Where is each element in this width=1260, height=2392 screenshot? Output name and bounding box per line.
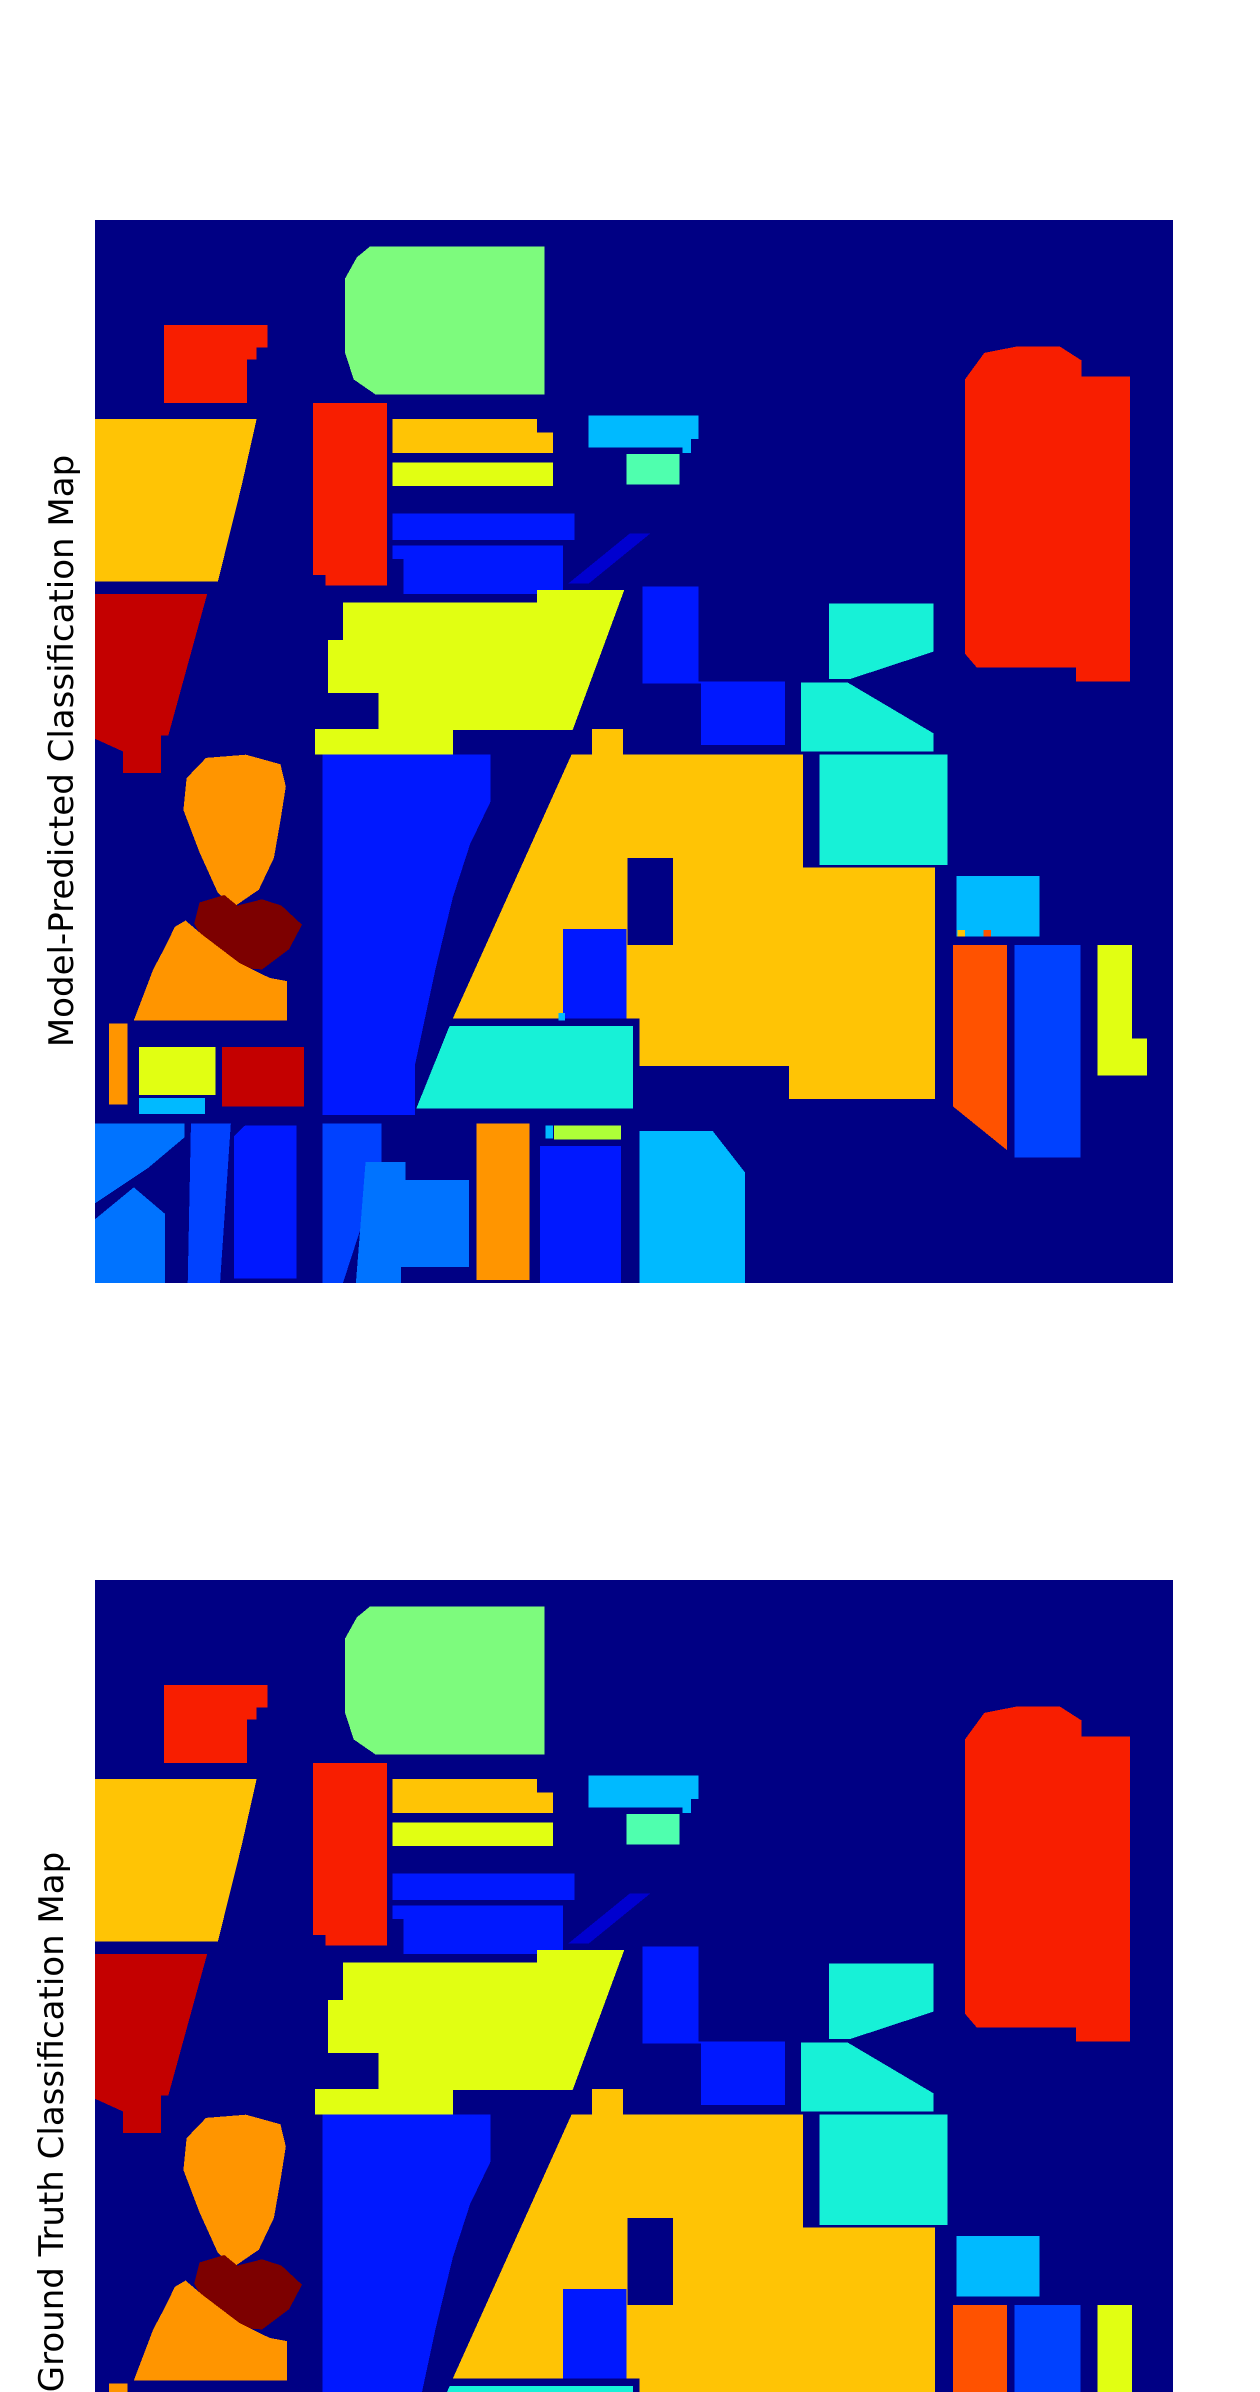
ground_truth-region-aquamarine-box	[626, 1814, 679, 1845]
ground_truth-region-orange-strip-narrow	[109, 2384, 127, 2392]
predicted-region-yellow-field-notch	[315, 693, 379, 729]
predicted-region-noise-dot-cyan	[559, 1013, 565, 1020]
predicted-region-yellow-bar	[393, 462, 554, 485]
predicted-region-blue-bar-1	[393, 513, 575, 540]
predicted-region-sky-block-right	[956, 876, 1039, 937]
predicted-classification-map	[95, 220, 1173, 1283]
ground_truth-region-orangered-strip	[953, 2305, 1007, 2392]
predicted-region-blue-strip-right	[1015, 945, 1081, 1158]
figure-canvas: Model-Predicted Classification Map Groun…	[0, 0, 1260, 2392]
predicted-region-gold-field-notch	[628, 858, 673, 945]
predicted-region-blue-rect-b	[234, 1126, 297, 1279]
ground_truth-region-blue-rect-in-gold	[563, 2289, 627, 2378]
predicted-region-sky-block-rounded	[639, 1131, 745, 1283]
predicted-region-orange-strip-bottom	[477, 1124, 530, 1280]
ground_truth-region-yellow-field-notch	[315, 2053, 379, 2089]
predicted-region-red-block-right	[965, 346, 1130, 681]
predicted-region-blue-rect-in-gold	[563, 929, 627, 1018]
ground_truth-region-green-blob	[345, 1607, 544, 1755]
ground_truth-region-turquoise-block-right	[819, 2115, 947, 2226]
ground_truth-region-gold-bar	[393, 1779, 554, 1813]
ground_truth-region-red-box-vertical	[313, 1763, 387, 1946]
predicted-region-turquoise-block-right	[819, 755, 947, 866]
predicted-region-blue-patch-e	[356, 1162, 469, 1283]
predicted-region-sky-bit	[546, 1126, 554, 1139]
predicted-region-gold-box-small	[592, 729, 623, 755]
ground_truth-region-sky-bar-top	[589, 1776, 699, 1813]
ylabel-ground-truth-map: Ground Truth Classification Map	[32, 1852, 72, 2392]
predicted-region-noise-speck-gold	[957, 930, 965, 936]
predicted-region-blue-rect-g	[540, 1146, 621, 1283]
predicted-map-image	[95, 220, 1173, 1283]
predicted-region-gold-bar	[393, 419, 554, 453]
ground_truth-region-yellow-bar	[393, 1822, 554, 1845]
predicted-region-turquoise-trapezoid	[416, 1026, 633, 1109]
predicted-region-aquamarine-box	[626, 454, 679, 485]
predicted-region-green-blob	[345, 247, 544, 395]
ground_truth-region-gold-box-small	[592, 2089, 623, 2115]
ground_truth-region-sky-block-right	[956, 2236, 1039, 2297]
ylabel-predicted-map: Model-Predicted Classification Map	[42, 455, 82, 1047]
predicted-region-noise-speck-orangered	[983, 930, 991, 936]
ground-truth-classification-map	[95, 1580, 1173, 2392]
predicted-region-chartreuse-sliver	[554, 1126, 621, 1140]
predicted-region-red-box-vertical	[313, 403, 387, 586]
predicted-region-yellow-box	[139, 1047, 216, 1095]
ground_truth-region-blue-bar-1	[393, 1873, 575, 1900]
ground_truth-map-image	[95, 1580, 1173, 2392]
ground_truth-region-blue-bar-2	[393, 1905, 563, 1954]
predicted-region-red-box-lower	[222, 1047, 304, 1107]
ground_truth-region-blue-strip-right	[1015, 2305, 1081, 2392]
ground_truth-region-gold-field-notch	[628, 2218, 673, 2305]
predicted-region-sky-bar-small	[139, 1098, 205, 1114]
ground_truth-region-red-block-right	[965, 1706, 1130, 2041]
predicted-region-sky-bar-top	[589, 416, 699, 453]
predicted-region-blue-bar-2	[393, 545, 563, 594]
predicted-region-orange-strip-narrow	[109, 1024, 127, 1105]
